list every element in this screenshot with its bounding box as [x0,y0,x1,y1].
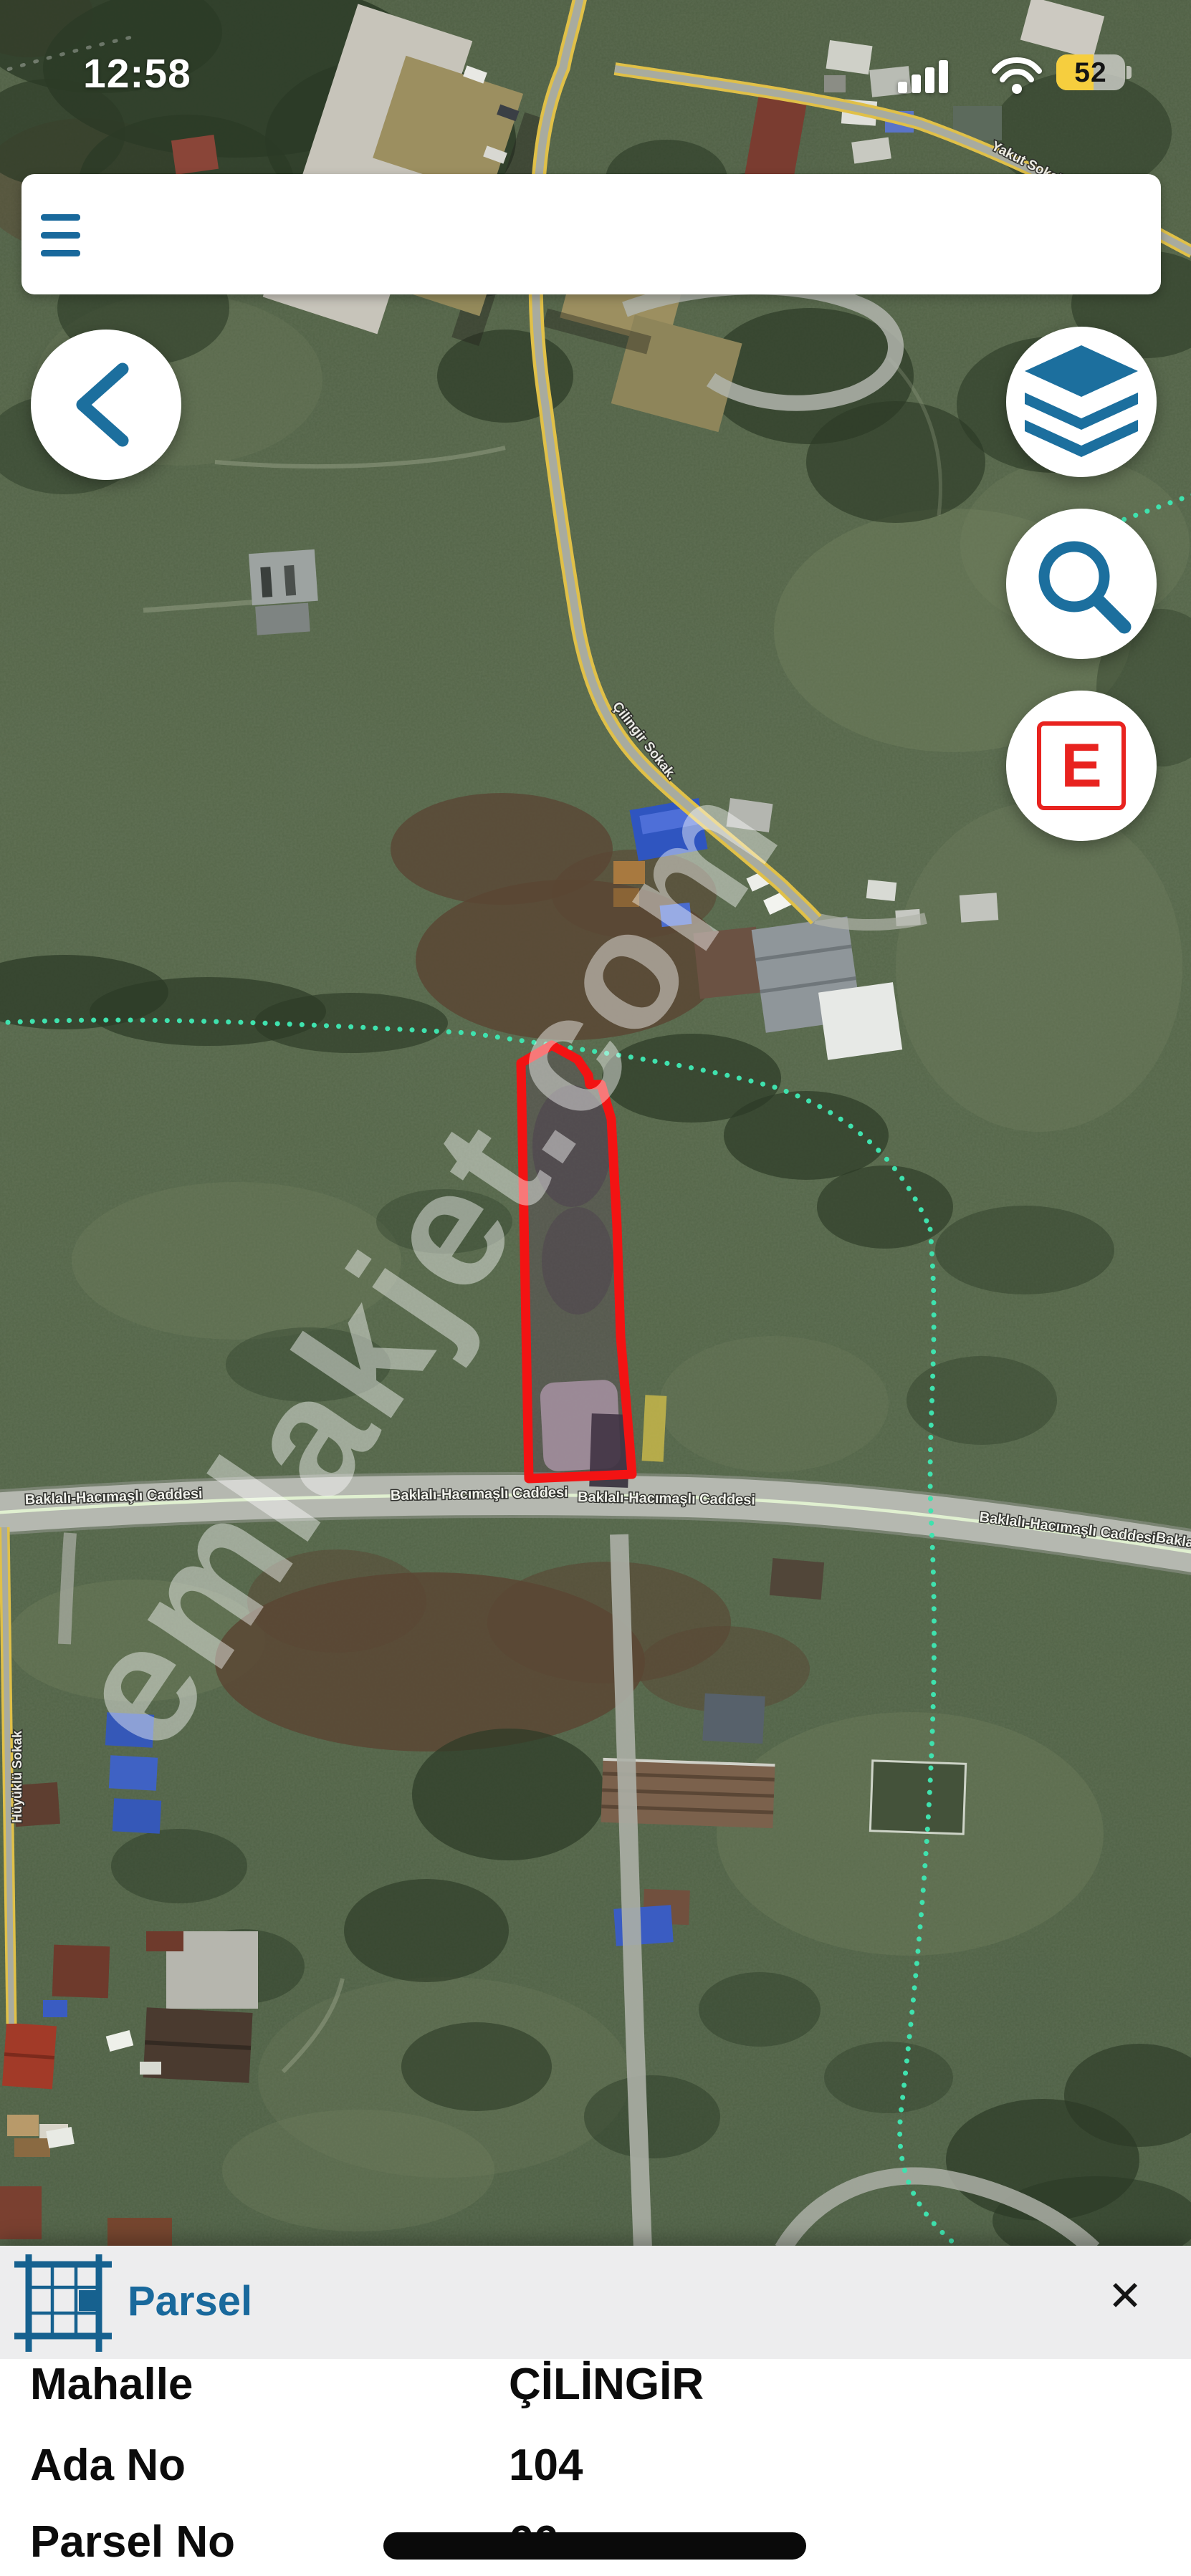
close-icon[interactable]: ✕ [1096,2272,1154,2320]
emlakjet-e-icon: E [1037,721,1126,810]
search-button[interactable] [1006,509,1157,659]
emlakjet-button[interactable]: E [1006,691,1157,841]
parcel-grid-icon [13,2253,113,2353]
back-button[interactable] [31,330,181,480]
panel-title: Parsel [128,2277,252,2325]
search-icon [1006,509,1157,659]
row-parsel-no-label: Parsel No [30,2517,235,2567]
row-parsel-no: Parsel No 66 [30,2517,1162,2574]
battery-nub [1127,66,1132,79]
parcel-info-panel: Parsel ✕ Mahalle ÇİLİNGİR Ada No 104 Par… [0,2246,1191,2576]
road-label-huyuklu: Hüyüklü Sokak [10,1730,24,1823]
panel-header: Parsel ✕ [0,2246,1191,2359]
wifi-icon [992,57,1042,95]
battery-indicator: 52 [1056,54,1125,90]
road-label-main-3: Baklalı-Hacımaşlı Caddesi [578,1489,755,1508]
row-mahalle-value: ÇİLİNGİR [509,2359,704,2410]
row-mahalle: Mahalle ÇİLİNGİR [30,2359,1162,2416]
chevron-left-icon [31,330,181,480]
redaction-bar [383,2532,806,2560]
battery-percent: 52 [1056,54,1125,90]
row-ada-no-value: 104 [509,2440,583,2491]
signal-strength-icon [898,59,950,93]
top-search-bar[interactable] [21,174,1161,294]
layers-icon [1006,327,1157,477]
layers-button[interactable] [1006,327,1157,477]
road-label-main-2: Baklalı-Hacımaşlı Caddesi [391,1485,568,1504]
barn-left [249,549,320,635]
row-ada-no: Ada No 104 [30,2440,1162,2497]
row-mahalle-label: Mahalle [30,2360,193,2409]
row-ada-no-label: Ada No [30,2441,186,2490]
status-time: 12:58 [83,50,191,97]
